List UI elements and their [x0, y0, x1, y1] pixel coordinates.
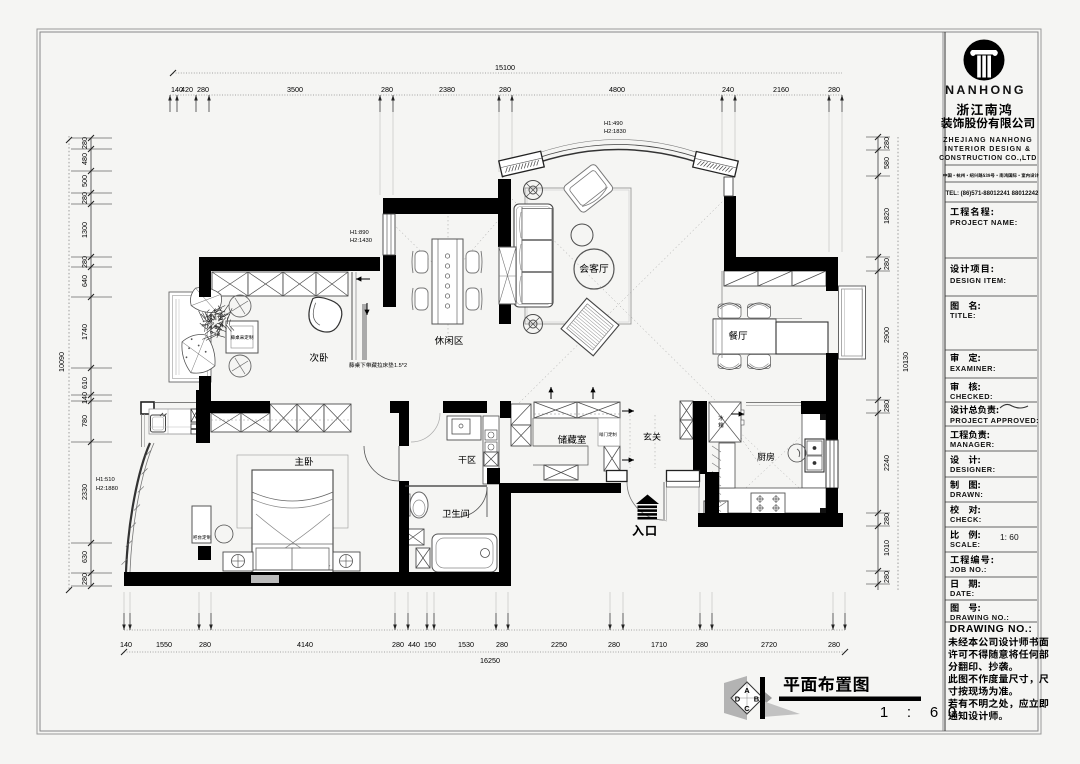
- svg-text:DATE:: DATE:: [950, 589, 975, 598]
- svg-text:2330: 2330: [80, 484, 89, 500]
- svg-text:280: 280: [499, 85, 511, 94]
- svg-text:10130: 10130: [901, 352, 910, 372]
- svg-text:C: C: [744, 704, 750, 713]
- svg-text:H1:890: H1:890: [350, 230, 369, 236]
- svg-text:H2:1430: H2:1430: [350, 238, 372, 244]
- svg-text:150: 150: [424, 640, 436, 649]
- svg-text:MANAGER:: MANAGER:: [950, 440, 995, 449]
- svg-text:4140: 4140: [297, 640, 313, 649]
- svg-text:780: 780: [80, 415, 89, 427]
- svg-text:500: 500: [80, 175, 89, 187]
- svg-text:H2:1830: H2:1830: [604, 129, 626, 135]
- svg-text:280: 280: [696, 640, 708, 649]
- svg-text:16250: 16250: [480, 656, 500, 665]
- svg-text:H1:510: H1:510: [96, 477, 115, 483]
- svg-text:630: 630: [80, 551, 89, 563]
- svg-text:2240: 2240: [882, 455, 891, 471]
- svg-text:4800: 4800: [609, 85, 625, 94]
- svg-text:280: 280: [80, 192, 89, 204]
- svg-text:440: 440: [408, 640, 420, 649]
- svg-text:1: 60: 1: 60: [1000, 532, 1019, 542]
- svg-text:280: 280: [828, 85, 840, 94]
- svg-text:280: 280: [80, 256, 89, 268]
- svg-text:1530: 1530: [458, 640, 474, 649]
- svg-text:PROJECT NAME:: PROJECT NAME:: [950, 218, 1018, 227]
- svg-text:640: 640: [80, 275, 89, 287]
- svg-text:1710: 1710: [651, 640, 667, 649]
- svg-text:CHECK:: CHECK:: [950, 515, 982, 524]
- svg-text:1740: 1740: [80, 324, 89, 340]
- svg-text:140: 140: [120, 640, 132, 649]
- svg-text:280: 280: [392, 640, 404, 649]
- svg-text:10090: 10090: [57, 352, 66, 372]
- svg-text:JOB NO.:: JOB NO.:: [950, 565, 987, 574]
- svg-text:280: 280: [882, 258, 891, 270]
- svg-text:CHECKED:: CHECKED:: [950, 392, 993, 401]
- svg-text:2380: 2380: [439, 85, 455, 94]
- svg-text:280: 280: [197, 85, 209, 94]
- svg-text:INTERIOR DESIGN &: INTERIOR DESIGN &: [945, 146, 1031, 153]
- svg-text:NANHONG: NANHONG: [945, 83, 1026, 97]
- svg-text:280: 280: [882, 400, 891, 412]
- svg-text:280: 280: [80, 573, 89, 585]
- svg-text:1820: 1820: [882, 208, 891, 224]
- svg-text:580: 580: [882, 157, 891, 169]
- svg-text:DRAWN:: DRAWN:: [950, 490, 983, 499]
- svg-text:EXAMINER:: EXAMINER:: [950, 364, 996, 373]
- svg-text:TITLE:: TITLE:: [950, 311, 976, 320]
- svg-text:3500: 3500: [287, 85, 303, 94]
- svg-text:SCALE:: SCALE:: [950, 540, 981, 549]
- svg-text:280: 280: [882, 571, 891, 583]
- svg-text:B: B: [754, 695, 760, 704]
- svg-text:PROJECT APPROVED:: PROJECT APPROVED:: [950, 416, 1039, 425]
- svg-text:2160: 2160: [773, 85, 789, 94]
- svg-text::: :: [907, 704, 911, 721]
- svg-text:280: 280: [496, 640, 508, 649]
- svg-text:2900: 2900: [882, 327, 891, 343]
- svg-text:1550: 1550: [156, 640, 172, 649]
- svg-text:280: 280: [381, 85, 393, 94]
- svg-text:610: 610: [80, 377, 89, 389]
- svg-text:CONSTRUCTION CO.,LTD: CONSTRUCTION CO.,LTD: [939, 155, 1037, 162]
- svg-text:280: 280: [199, 640, 211, 649]
- svg-text:DESIGNER:: DESIGNER:: [950, 465, 996, 474]
- svg-text:280: 280: [882, 513, 891, 525]
- svg-text:140: 140: [80, 392, 89, 404]
- svg-text:480: 480: [80, 153, 89, 165]
- svg-text:280: 280: [80, 137, 89, 149]
- svg-text:2720: 2720: [761, 640, 777, 649]
- svg-text:280: 280: [882, 137, 891, 149]
- svg-text:240: 240: [722, 85, 734, 94]
- svg-text:2250: 2250: [551, 640, 567, 649]
- svg-text:420: 420: [181, 85, 193, 94]
- svg-text:0: 0: [948, 704, 956, 721]
- svg-text:15100: 15100: [495, 63, 515, 72]
- svg-text:280: 280: [828, 640, 840, 649]
- svg-text:ZHEJIANG NANHONG: ZHEJIANG NANHONG: [943, 137, 1033, 144]
- svg-text:DESIGN ITEM:: DESIGN ITEM:: [950, 276, 1007, 285]
- svg-text:DRAWING NO.:: DRAWING NO.:: [950, 613, 1009, 622]
- svg-text:DRAWING NO.:: DRAWING NO.:: [949, 623, 1032, 635]
- svg-text:H1:490: H1:490: [604, 121, 623, 127]
- svg-text:6: 6: [930, 704, 938, 721]
- svg-text:1300: 1300: [80, 222, 89, 238]
- svg-text:1.5*2: 1.5*2: [394, 363, 407, 369]
- svg-text:D: D: [735, 695, 741, 704]
- svg-text:1010: 1010: [882, 540, 891, 556]
- svg-text:H2:1880: H2:1880: [96, 486, 118, 492]
- svg-text:1: 1: [880, 704, 888, 721]
- svg-text:TEL: (86)571-88012241 88012242: TEL: (86)571-88012241 88012242: [946, 191, 1039, 197]
- svg-text:280: 280: [608, 640, 620, 649]
- svg-text:A: A: [744, 686, 750, 695]
